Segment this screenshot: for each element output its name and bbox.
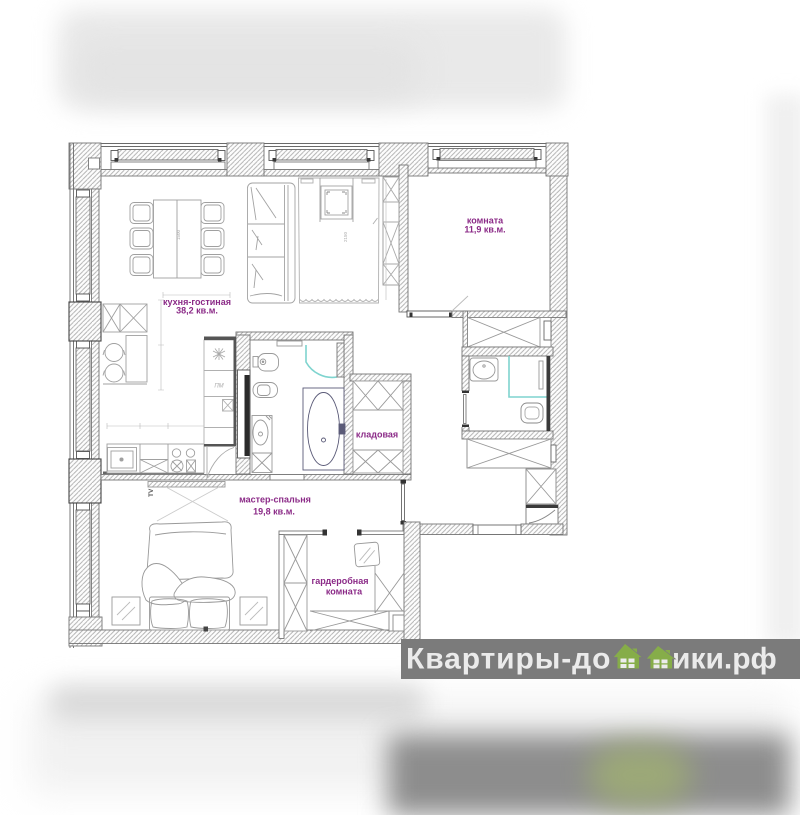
svg-text:1500: 1500 [176,229,181,240]
svg-text:Квартиры-до: Квартиры-до [406,643,611,676]
svg-text:19,8 кв.м.: 19,8 кв.м. [253,507,295,517]
svg-text:11,9 кв.м.: 11,9 кв.м. [464,225,505,235]
svg-text:гардеробная: гардеробная [312,576,369,586]
svg-text:ПМ: ПМ [214,384,223,390]
svg-text:38,2 кв.м.: 38,2 кв.м. [176,306,218,316]
svg-text:мастер-спальня: мастер-спальня [239,495,311,505]
svg-text:комната: комната [326,587,363,597]
svg-text:ики.рф: ики.рф [672,643,777,676]
svg-text:кладовая: кладовая [356,430,398,440]
svg-text:2150: 2150 [343,231,348,242]
svg-text:TV: TV [148,488,155,497]
